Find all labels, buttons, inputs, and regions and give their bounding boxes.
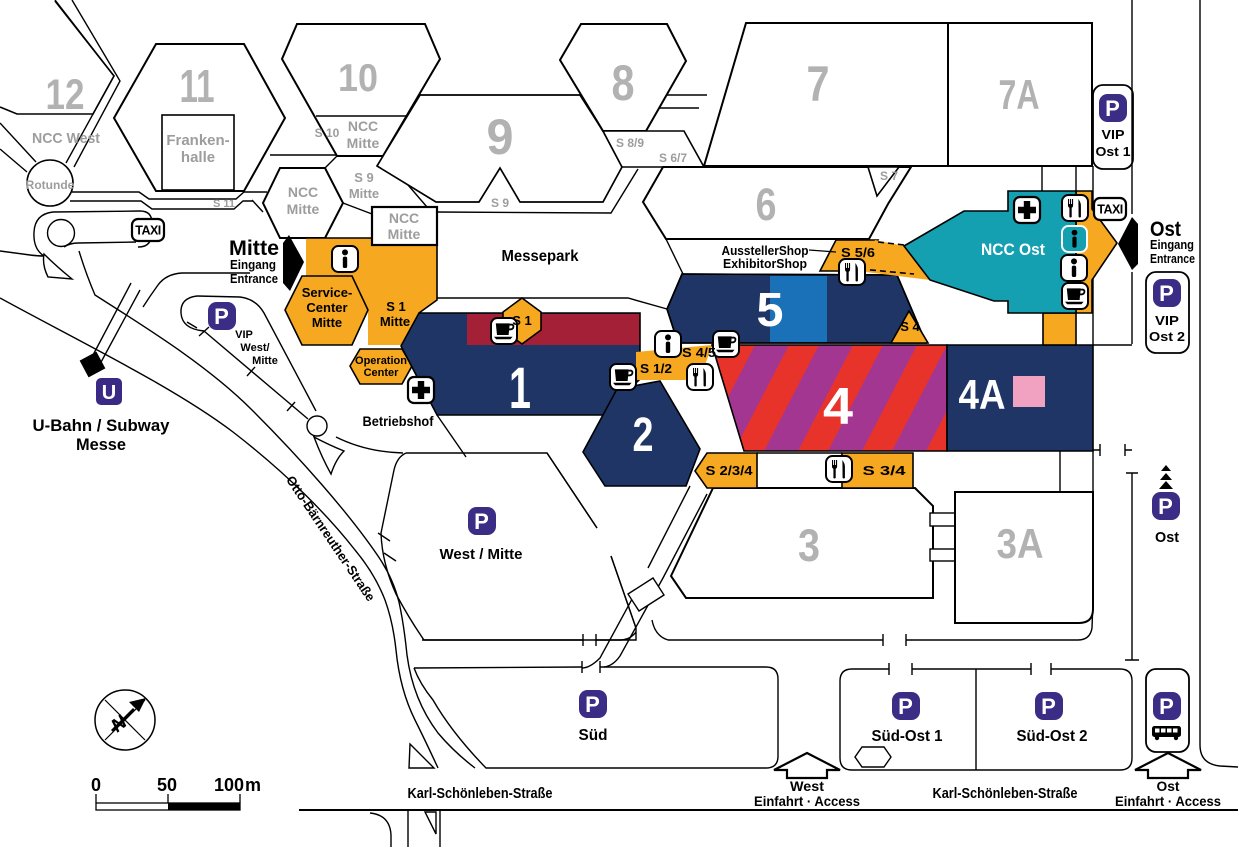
svg-text:ExhibitorShop: ExhibitorShop <box>723 256 807 271</box>
svg-text:S 4: S 4 <box>900 319 920 334</box>
svg-text:5: 5 <box>757 284 784 337</box>
svg-text:S 9: S 9 <box>491 196 509 210</box>
svg-text:4A: 4A <box>959 371 1006 418</box>
svg-text:Franken-: Franken- <box>166 132 229 149</box>
svg-text:Süd-Ost 2: Süd-Ost 2 <box>1017 728 1088 745</box>
svg-text:9: 9 <box>487 109 514 165</box>
svg-text:Eingang: Eingang <box>230 257 276 272</box>
svg-text:S 8/9: S 8/9 <box>616 136 644 150</box>
svg-text:7A: 7A <box>999 71 1040 118</box>
svg-text:Mitte: Mitte <box>252 355 278 367</box>
svg-text:Karl-Schönleben-Straße: Karl-Schönleben-Straße <box>933 785 1078 802</box>
svg-text:Center: Center <box>364 367 400 379</box>
svg-text:S 10: S 10 <box>315 126 340 140</box>
svg-text:S 11: S 11 <box>213 198 235 210</box>
svg-text:VIP: VIP <box>1102 127 1125 142</box>
svg-text:Eingang: Eingang <box>1150 238 1194 252</box>
svg-text:Entrance: Entrance <box>230 271 278 286</box>
svg-text:Betriebshof: Betriebshof <box>363 413 434 429</box>
svg-text:U-Bahn / Subway: U-Bahn / Subway <box>33 416 171 435</box>
svg-text:halle: halle <box>181 149 215 166</box>
svg-text:100: 100 <box>214 775 244 795</box>
svg-text:12: 12 <box>46 71 85 119</box>
svg-text:Service-: Service- <box>302 285 353 300</box>
svg-text:Entrance: Entrance <box>1150 252 1195 266</box>
svg-text:Ost 1: Ost 1 <box>1096 144 1131 159</box>
svg-text:3: 3 <box>798 520 820 571</box>
svg-text:Mitte: Mitte <box>380 314 410 329</box>
svg-text:4: 4 <box>823 378 853 436</box>
svg-text:m: m <box>245 775 261 795</box>
svg-text:Mitte: Mitte <box>287 201 320 217</box>
svg-text:West/: West/ <box>240 342 269 354</box>
svg-text:S 1: S 1 <box>386 299 406 314</box>
svg-text:S 1: S 1 <box>512 313 532 328</box>
svg-text:S 7: S 7 <box>880 169 898 183</box>
svg-text:NCC: NCC <box>389 210 419 226</box>
svg-text:0: 0 <box>91 775 101 795</box>
svg-text:Operation: Operation <box>355 355 407 367</box>
svg-text:NCC West: NCC West <box>32 130 100 147</box>
svg-text:S 5/6: S 5/6 <box>841 245 875 260</box>
svg-text:6: 6 <box>756 179 777 230</box>
svg-text:Süd: Süd <box>579 727 608 744</box>
svg-text:S 3/4: S 3/4 <box>863 463 907 478</box>
svg-text:Einfahrt · Access: Einfahrt · Access <box>1115 793 1221 809</box>
svg-text:8: 8 <box>612 55 635 111</box>
svg-text:3A: 3A <box>997 520 1044 567</box>
svg-text:Ost: Ost <box>1155 529 1179 546</box>
svg-text:Mitte: Mitte <box>388 226 421 242</box>
svg-text:Mitte: Mitte <box>347 135 380 151</box>
svg-text:7: 7 <box>807 56 830 112</box>
svg-text:S 2/3/4: S 2/3/4 <box>706 463 754 478</box>
svg-text:2: 2 <box>633 409 654 462</box>
svg-text:Karl-Schönleben-Straße: Karl-Schönleben-Straße <box>408 785 553 802</box>
svg-text:S 1/2: S 1/2 <box>640 361 672 376</box>
svg-text:VIP: VIP <box>1155 313 1179 328</box>
svg-text:Center: Center <box>306 300 347 315</box>
svg-text:Ost: Ost <box>1157 778 1180 794</box>
svg-text:U: U <box>102 382 116 404</box>
svg-text:Messepark: Messepark <box>502 248 579 265</box>
svg-text:West: West <box>790 778 824 794</box>
svg-text:Messe: Messe <box>76 435 126 454</box>
svg-text:11: 11 <box>180 60 215 112</box>
svg-text:Süd-Ost 1: Süd-Ost 1 <box>872 728 943 745</box>
svg-text:NCC: NCC <box>288 184 318 200</box>
svg-text:S 9: S 9 <box>354 170 374 185</box>
svg-text:Rotunde: Rotunde <box>26 178 75 192</box>
svg-text:Mitte: Mitte <box>349 186 379 201</box>
svg-text:50: 50 <box>157 775 177 795</box>
svg-text:NCC Ost: NCC Ost <box>981 240 1045 259</box>
svg-text:NCC: NCC <box>348 118 378 134</box>
svg-text:10: 10 <box>338 57 378 100</box>
svg-text:Ost 2: Ost 2 <box>1149 329 1185 344</box>
svg-text:Einfahrt · Access: Einfahrt · Access <box>754 793 860 809</box>
svg-text:VIP: VIP <box>235 329 253 341</box>
svg-text:1: 1 <box>509 356 531 421</box>
svg-text:S 4/5: S 4/5 <box>682 345 716 360</box>
svg-text:Mitte: Mitte <box>312 315 342 330</box>
svg-text:West / Mitte: West / Mitte <box>440 546 523 563</box>
svg-text:S 6/7: S 6/7 <box>659 151 687 165</box>
